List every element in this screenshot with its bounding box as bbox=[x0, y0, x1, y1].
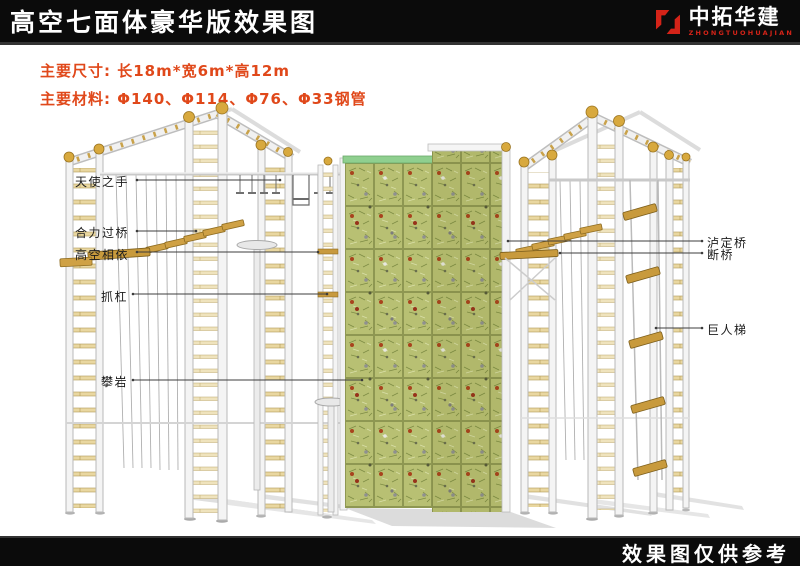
left-tower bbox=[60, 102, 345, 520]
center-ladder bbox=[315, 157, 347, 515]
page: 高空七面体豪华版效果图 中拓华建 ZHONGTUOHUAJIAN 主要尺寸: 长… bbox=[0, 0, 800, 566]
callout-cooperation-bridge: 合力过桥 bbox=[75, 224, 129, 241]
spec-dimensions: 主要尺寸: 长18m*宽6m*高12m bbox=[40, 60, 290, 81]
right-tower bbox=[500, 106, 700, 518]
callout-high-altitude-reliance: 高空相依 bbox=[75, 246, 129, 263]
footer-note: 效果图仅供参考 bbox=[622, 538, 790, 566]
logo-subtitle: ZHONGTUOHUAJIAN bbox=[689, 30, 794, 37]
ground-shadows bbox=[65, 492, 744, 528]
logo-name: 中拓华建 bbox=[689, 7, 794, 28]
callout-giant-ladder: 巨人梯 bbox=[707, 321, 748, 338]
logo-icon bbox=[652, 6, 684, 38]
callout-rock-climbing: 攀岩 bbox=[101, 373, 128, 390]
spec-materials: 主要材料: Φ140、Φ114、Φ76、Φ33钢管 bbox=[40, 88, 367, 109]
footer-bar: 效果图仅供参考 bbox=[0, 536, 800, 566]
page-title: 高空七面体豪华版效果图 bbox=[10, 3, 318, 39]
angel-hand-hangers bbox=[236, 175, 334, 205]
callout-angel-hand: 天使之手 bbox=[75, 173, 129, 190]
giant-ladder bbox=[623, 180, 668, 480]
callout-leader-lines bbox=[132, 179, 704, 382]
logo: 中拓华建 ZHONGTUOHUAJIAN bbox=[652, 3, 794, 41]
callout-grab-bar: 抓杠 bbox=[101, 288, 128, 305]
luding-bridge-planks bbox=[500, 224, 603, 300]
climbing-wall bbox=[340, 143, 511, 513]
disc-pole bbox=[237, 241, 277, 491]
structure-rendering bbox=[0, 0, 800, 566]
callout-broken-bridge: 断桥 bbox=[707, 246, 734, 263]
